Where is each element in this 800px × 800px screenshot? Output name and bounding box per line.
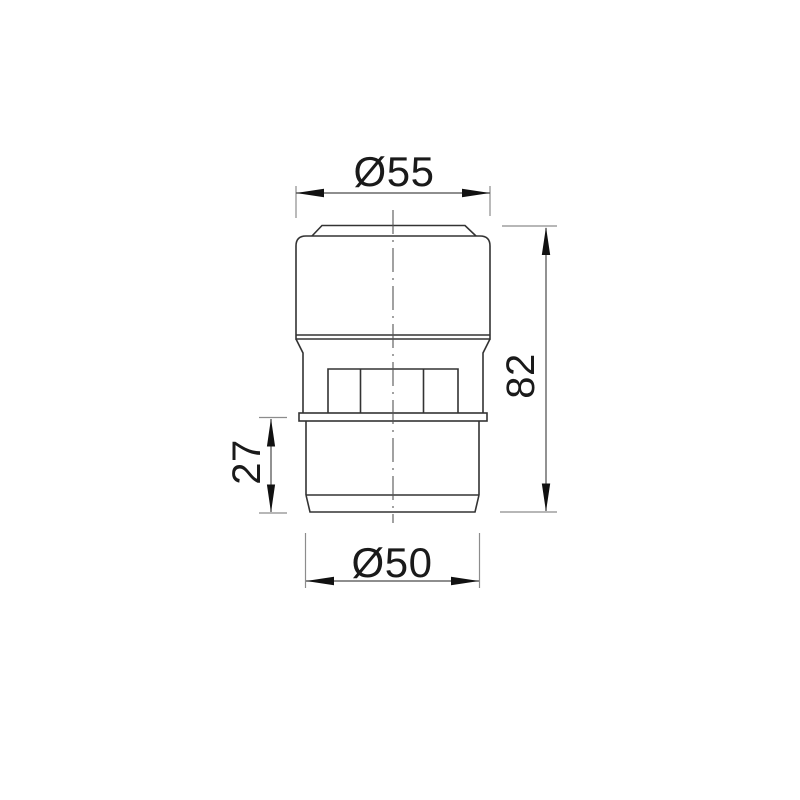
top-cap-outline [312, 226, 476, 237]
arrow-d50-left [306, 577, 334, 585]
technical-drawing: Ø55 82 27 Ø50 [0, 0, 800, 800]
dimension-label-overall-height: 82 [499, 353, 543, 399]
dimension-label-lower-section-height: 27 [225, 439, 269, 485]
arrow-d55-right [462, 189, 490, 197]
dimension-label-bottom-diameter: Ø50 [352, 539, 433, 586]
arrow-h82-bottom [542, 484, 550, 512]
dimension-label-top-diameter: Ø55 [354, 148, 435, 195]
arrow-h82-top [542, 227, 550, 255]
left-taper-outline [296, 339, 303, 413]
arrow-d50-right [451, 577, 479, 585]
drawing-canvas: Ø55 82 27 Ø50 [0, 0, 800, 800]
arrow-d55-left [296, 189, 324, 197]
right-taper-outline [483, 339, 490, 413]
arrow-h27-bottom [267, 485, 275, 513]
